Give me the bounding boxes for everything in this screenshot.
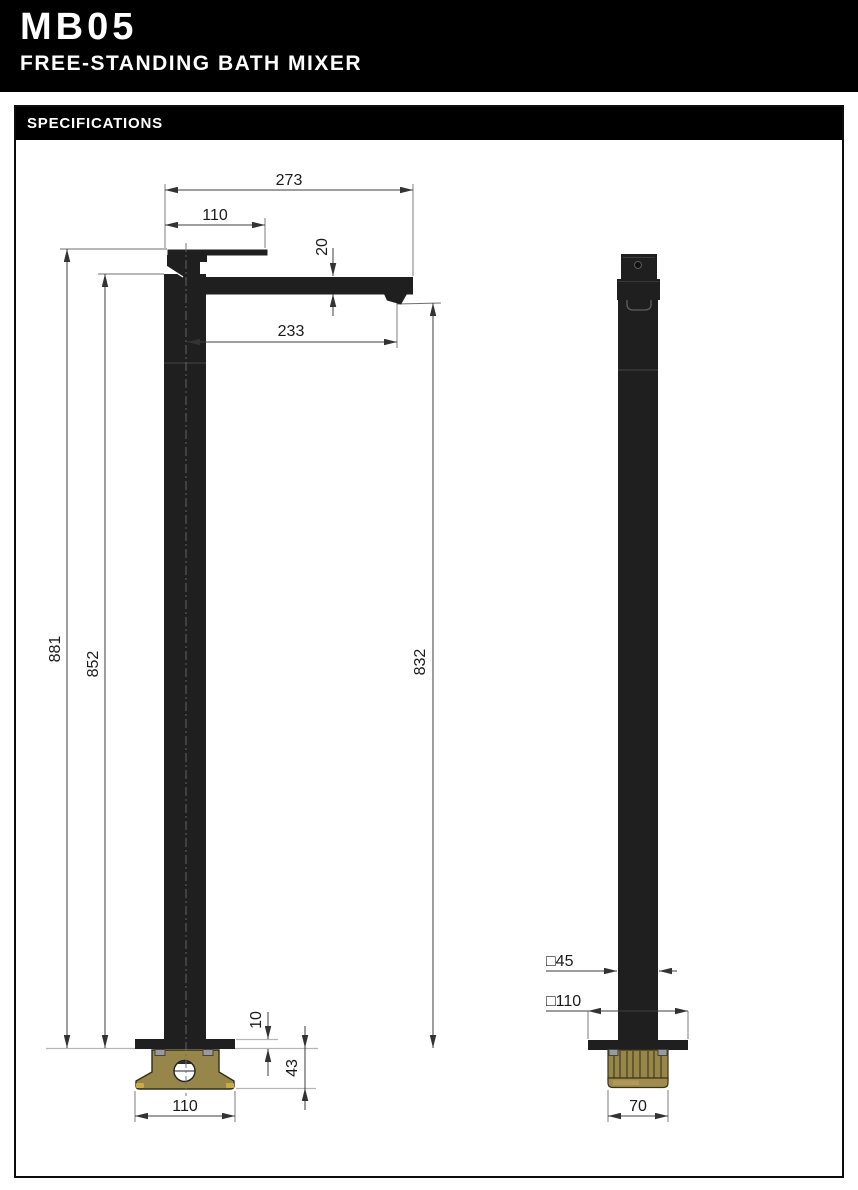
front-dimensions: 273 110 20 233 881 852 832 10 43 110 — [47, 172, 433, 1116]
front-spout — [164, 277, 413, 295]
side-bolt-right — [658, 1050, 667, 1056]
side-set-screw — [635, 262, 642, 269]
dim-flange-square: □110 — [546, 993, 581, 1010]
specification-sheet: MB05 FREE-STANDING BATH MIXER SPECIFICAT… — [0, 0, 858, 1190]
base-bolt-right — [203, 1050, 213, 1056]
front-aerator — [384, 294, 407, 305]
dim-overall-height: 881 — [47, 636, 64, 663]
dim-flange-thickness: 10 — [248, 1011, 265, 1029]
technical-drawing: 273 110 20 233 881 852 832 10 43 110 — [0, 0, 858, 1190]
front-lever — [168, 250, 268, 256]
front-handle-body — [167, 255, 200, 274]
front-lever-tip — [199, 255, 207, 262]
ext-outlet — [397, 303, 441, 304]
front-post — [164, 274, 206, 1040]
base-accent-left — [136, 1083, 144, 1088]
side-view — [588, 254, 688, 1088]
dim-handle-length: 110 — [202, 207, 228, 224]
side-post — [618, 299, 658, 1040]
dim-outlet-height: 832 — [412, 649, 429, 676]
dim-spout-thickness: 20 — [314, 238, 331, 256]
dim-spout-top-height: 852 — [85, 651, 102, 678]
dim-fitting-width: 70 — [629, 1098, 647, 1115]
dim-post-square: □45 — [546, 953, 574, 970]
side-bolt-left — [609, 1050, 618, 1056]
dim-spout-reach: 233 — [278, 323, 305, 340]
dim-overall-width: 273 — [276, 172, 303, 189]
base-bolt-left — [155, 1050, 165, 1056]
dim-base-width: 110 — [172, 1098, 198, 1115]
side-flange — [588, 1040, 688, 1050]
front-flange — [135, 1039, 235, 1049]
side-dimensions: □45 □110 70 — [546, 953, 688, 1122]
dim-base-depth: 43 — [284, 1059, 301, 1077]
base-accent-right — [226, 1083, 234, 1088]
side-fitting-lip-highlight — [613, 1081, 639, 1086]
side-spout-block — [617, 279, 660, 300]
